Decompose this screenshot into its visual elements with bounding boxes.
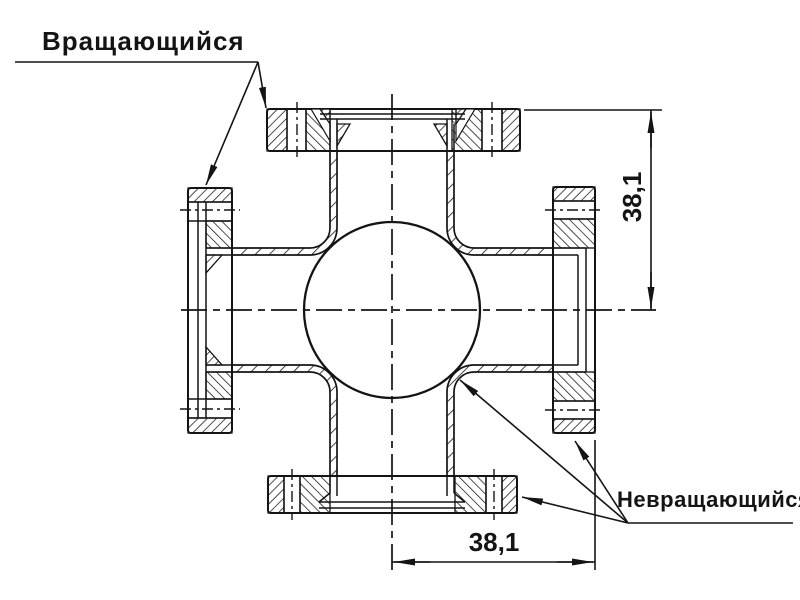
leader-arrow-right-flange	[575, 441, 628, 523]
flange-top-cap-left	[267, 109, 287, 151]
wall-bottom-left	[232, 365, 337, 476]
callout-rotating: Вращающийся	[15, 26, 266, 185]
dimension-vertical-value: 38,1	[617, 172, 647, 223]
flange-left-cap-bottom	[188, 418, 232, 433]
leader-arrow-left-flange	[206, 62, 258, 185]
dimension-horizontal-value: 38,1	[469, 527, 520, 557]
flange-right-cap-bottom	[553, 419, 595, 433]
label-rotating: Вращающийся	[42, 26, 245, 56]
flange-right-cap-top	[553, 187, 595, 201]
flange-top-cap-right	[502, 109, 520, 151]
flange-left-block-bottom	[206, 372, 232, 399]
wall-top-left	[232, 151, 337, 255]
leader-arrow-top-flange	[258, 62, 266, 108]
flange-bottom-cap-right	[502, 476, 517, 513]
flange-left-block-top	[206, 221, 232, 248]
flange-right-block-bottom	[553, 372, 595, 401]
label-non-rotating: Невращающийся	[617, 487, 800, 512]
technical-drawing-cross-fitting: 38,1 38,1 Вращающийся Невращающийся	[0, 0, 800, 600]
flange-left-cap-top	[188, 188, 232, 202]
drawing-sheet: 38,1 38,1 Вращающийся Невращающийся	[0, 0, 800, 600]
flange-top	[267, 102, 520, 158]
wall-top-right	[447, 151, 553, 255]
flange-bottom-cap-left	[268, 476, 284, 513]
flange-right-block-top	[553, 219, 595, 248]
